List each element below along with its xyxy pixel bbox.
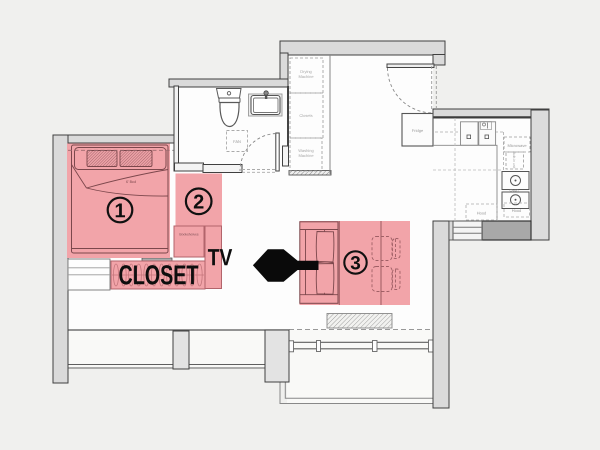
svg-text:Microwave: Microwave bbox=[507, 143, 527, 148]
svg-text:Hood: Hood bbox=[512, 208, 522, 213]
svg-text:Machine: Machine bbox=[298, 74, 314, 79]
svg-text:Closets: Closets bbox=[299, 113, 312, 118]
svg-text:Hood: Hood bbox=[477, 211, 487, 216]
svg-text:Bookshelves: Bookshelves bbox=[179, 233, 199, 237]
svg-text:Built-in unit: Built-in unit bbox=[512, 152, 516, 169]
svg-text:Machine: Machine bbox=[298, 153, 314, 158]
svg-text:FAN: FAN bbox=[233, 139, 241, 144]
svg-text:Fridge: Fridge bbox=[412, 128, 424, 133]
svg-text:6' Bed: 6' Bed bbox=[126, 180, 136, 184]
